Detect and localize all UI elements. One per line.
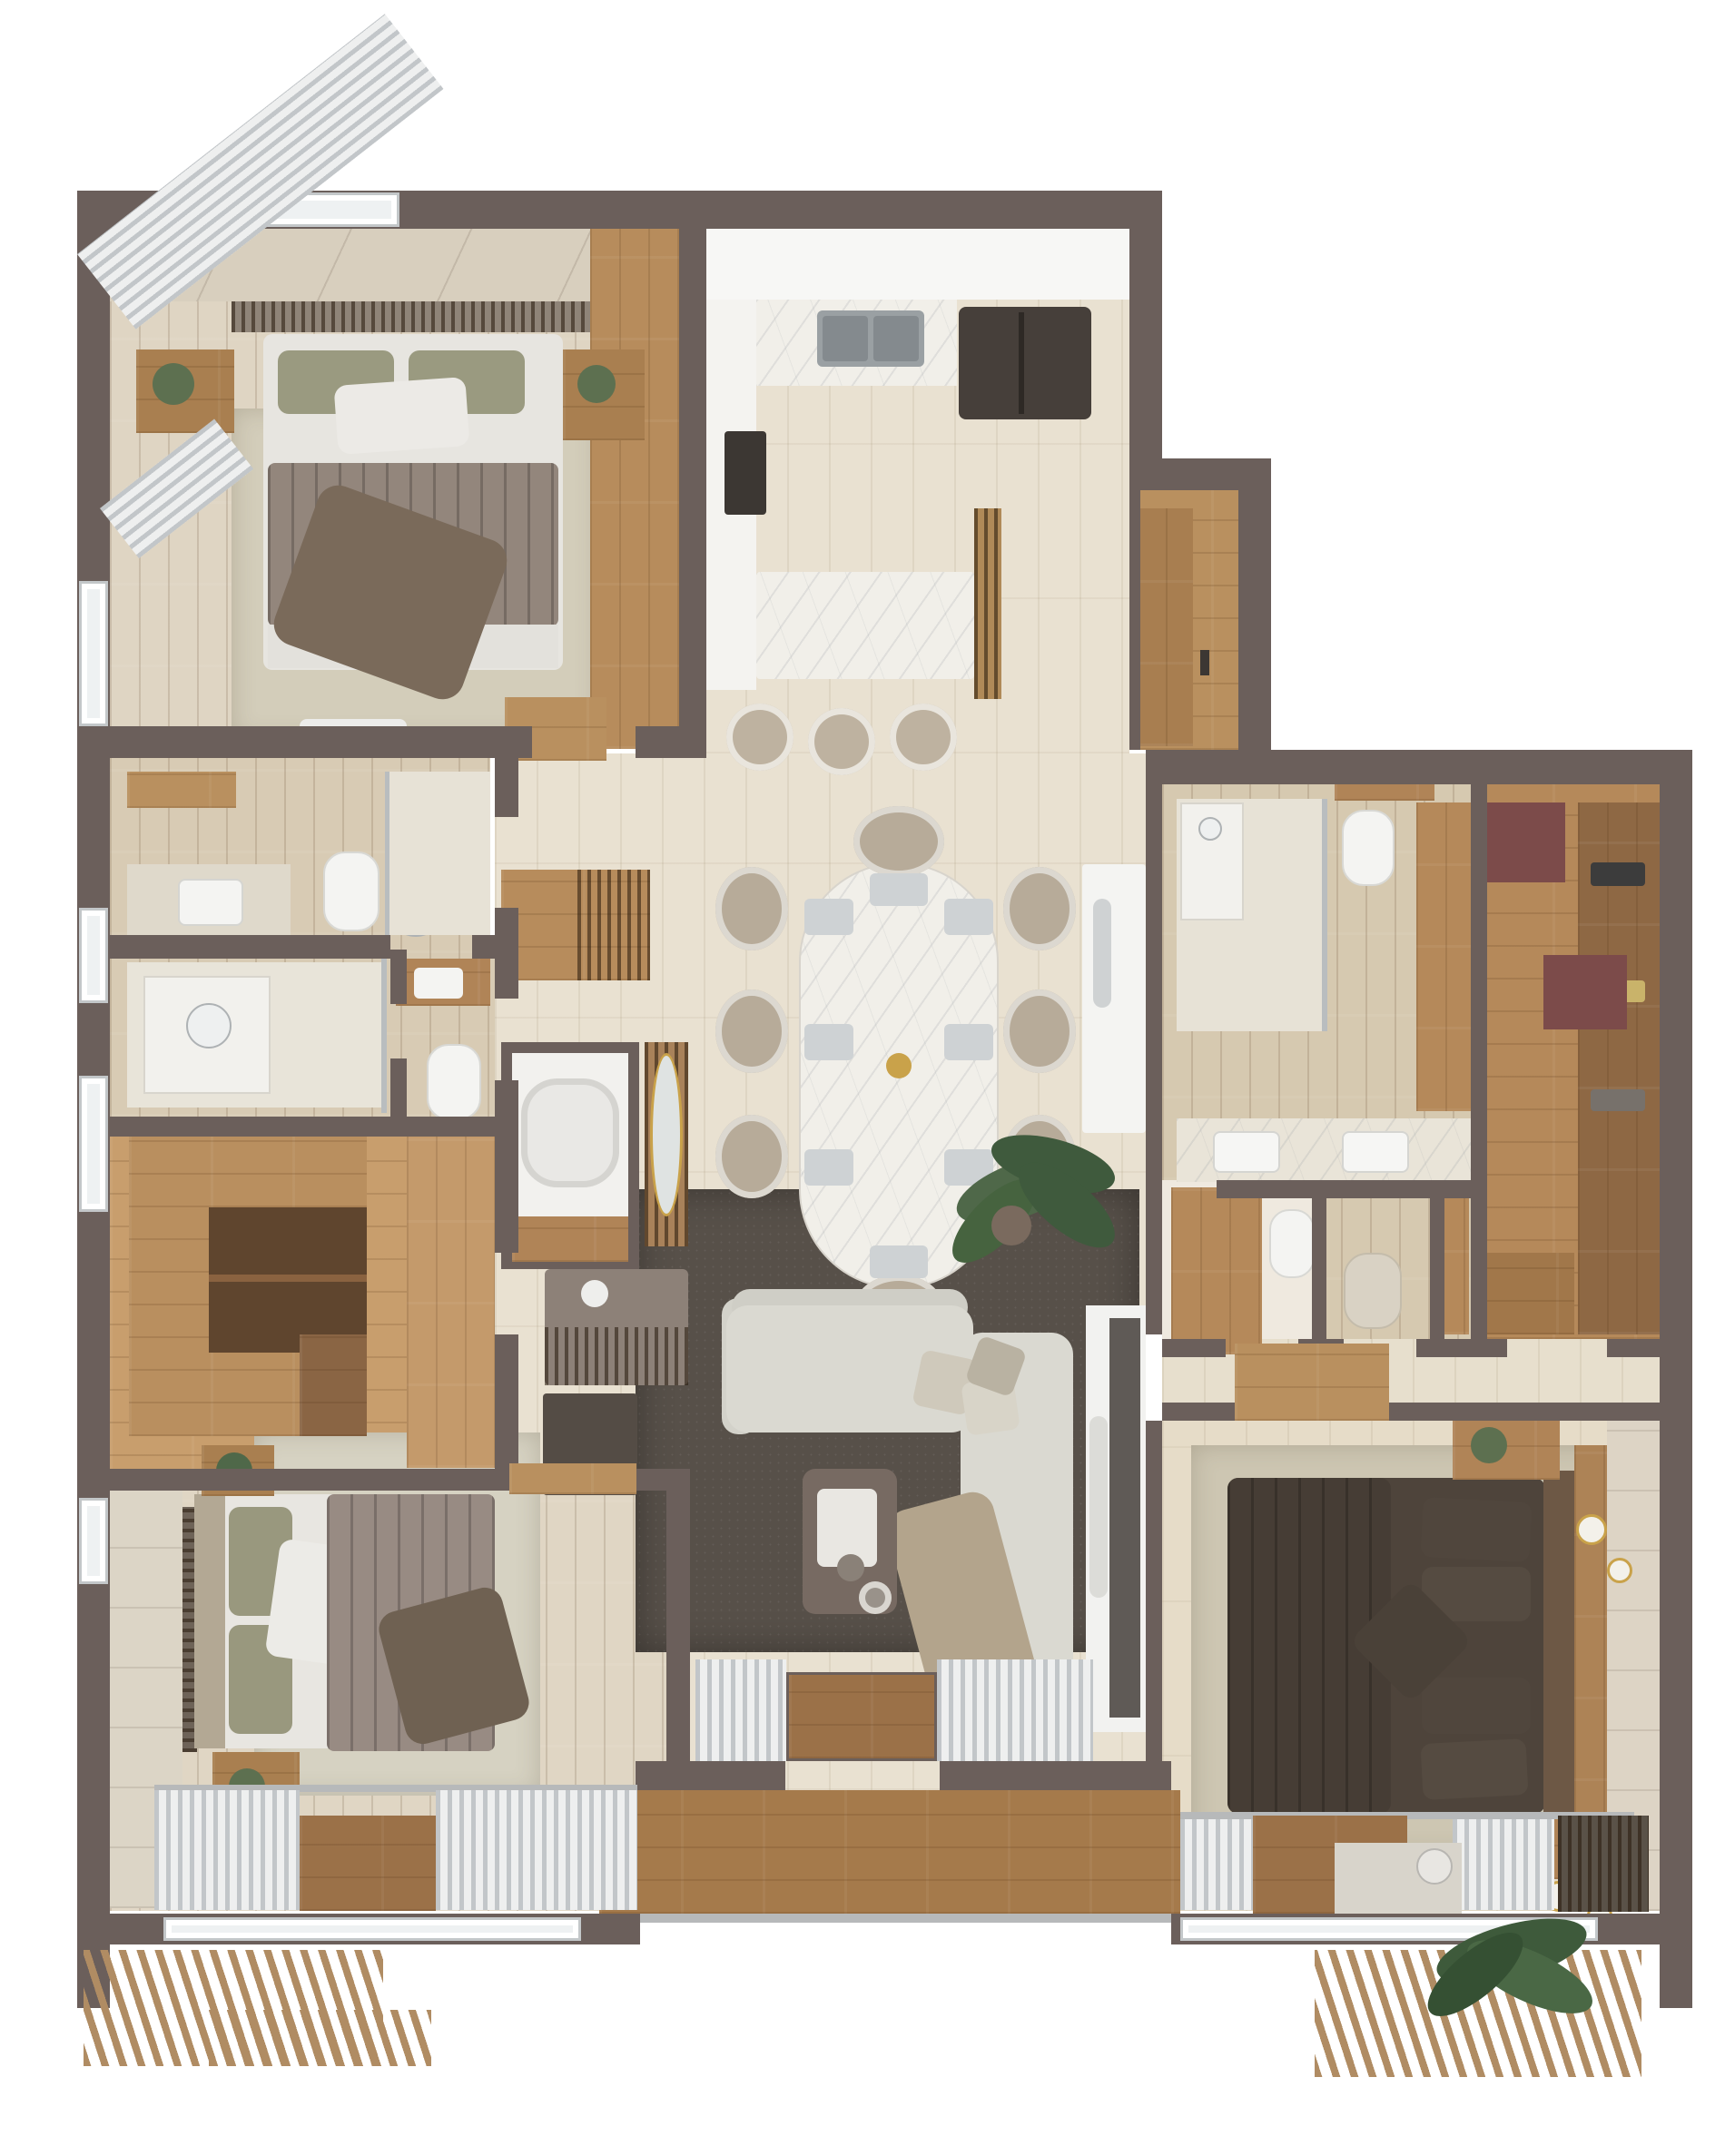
bathroom1-sink (178, 879, 243, 926)
bathroom2-toilet (1342, 810, 1395, 886)
wall-corridor-top-a (1162, 1339, 1226, 1357)
balcony-center-deck (599, 1790, 1180, 1914)
wc-right-toilet (1344, 1253, 1402, 1329)
dining-chair-top (853, 806, 944, 877)
bathroom2-shower-head (1198, 817, 1222, 841)
wc-left-toilet (1269, 1209, 1315, 1278)
place-setting-4 (944, 899, 993, 935)
bedroom2-headboard (194, 1494, 225, 1748)
hall-cabinet-slats (577, 870, 650, 980)
kitchen-stool-1 (726, 704, 793, 771)
tv-screen (1109, 1318, 1140, 1718)
bathroom2-cistern-shelf (1335, 784, 1434, 801)
sideboard-decor (1093, 899, 1111, 1008)
kitchen-upper-cabinets (704, 229, 1129, 300)
window-left-4 (79, 1498, 108, 1584)
bedroom2-balcony-deck (300, 1816, 436, 1911)
bedroom1-pillow-white (334, 377, 470, 455)
foyer-pendant (1200, 650, 1209, 675)
place-setting-1 (804, 899, 853, 935)
bathroom2-wood-cabinet (1416, 802, 1471, 1111)
wall-bedroom3-top-b (1389, 1403, 1660, 1421)
louver-awning-left-2 (209, 2010, 431, 2066)
bedroom3-curtain-right (1453, 1819, 1554, 1910)
wall-east-a (1146, 750, 1162, 1334)
tv-decor-sculpture (1089, 1416, 1108, 1598)
balcony-slat-screen (1558, 1816, 1649, 1912)
wall-bedroom3-top-a (1162, 1403, 1235, 1421)
kitchen-slat-screen (974, 508, 1001, 699)
threshold-bedroom3 (1235, 1344, 1389, 1421)
kitchen-sink-basin-right (873, 316, 919, 361)
wc-left-cabinet (1171, 1187, 1262, 1354)
kitchen-island-base (704, 556, 756, 690)
bathroom2-shower-glass (1322, 799, 1327, 1031)
bedroom3-headboard (1543, 1471, 1574, 1821)
bedroom3-pillow-4 (1420, 1738, 1528, 1800)
pendant-lamp-2 (1607, 1558, 1632, 1583)
wall-east-b (1146, 1421, 1162, 1761)
hall-oval-mirror (650, 1053, 683, 1216)
storage-right-panel (407, 1137, 495, 1468)
hall-console-slats (545, 1327, 688, 1385)
wall-bath-right-3 (495, 1080, 518, 1253)
wall-foyer-left (1129, 490, 1140, 750)
wall-shower-wc-divider-a (390, 950, 407, 1004)
wall-wc-right (1430, 1180, 1444, 1339)
wall-bath-right-2 (495, 908, 518, 999)
bathroom1-shelf (127, 772, 236, 808)
bedroom2-curtain-left (154, 1790, 300, 1910)
shower-room-glass (381, 959, 387, 1113)
dining-chair-left-3 (715, 1115, 788, 1198)
closet-shoes-1 (1591, 862, 1645, 886)
wc-small-toilet (427, 1044, 481, 1120)
wall-shower-wc-divider-b (390, 1058, 407, 1117)
wall-storage-bottom-a (110, 1469, 509, 1491)
wall-right (1660, 750, 1692, 2008)
shower-room-rainhead (186, 1003, 232, 1048)
bathroom1-toilet (323, 852, 379, 931)
balcony-side-table (1416, 1848, 1453, 1885)
balcony-center-rail (640, 1914, 1171, 1923)
closet-shoes-3 (1591, 1089, 1645, 1111)
bedroom1-plant-right (577, 365, 616, 403)
wall-bedroom1-bottom-b (636, 726, 679, 758)
wall-bathroom1-bottom-b (472, 935, 495, 959)
kitchen-island-top (756, 572, 974, 679)
dining-sideboard (1082, 864, 1146, 1133)
storage-lower-block (300, 1334, 367, 1436)
storage-shelf-line (209, 1275, 367, 1282)
place-setting-top (870, 873, 928, 906)
kitchen-fridge-handle (1019, 312, 1024, 414)
place-setting-2 (804, 1024, 853, 1060)
wall-bedroom1-bottom-a (110, 726, 532, 758)
pendant-lamp-1 (1576, 1514, 1607, 1545)
wall-living-south-a (636, 1761, 785, 1790)
wall-wc-divider (1312, 1180, 1326, 1362)
boiler-shelf (512, 1216, 628, 1262)
coffee-table-cup-1 (837, 1554, 864, 1581)
wall-storage-top (110, 1117, 495, 1137)
wc-small-basin (414, 968, 463, 999)
window-left-3 (79, 1076, 108, 1212)
bathroom1-shower (385, 772, 490, 935)
threshold-bedroom2 (509, 1463, 636, 1494)
kitchen-stool-2 (808, 708, 875, 775)
kitchen-fridge (959, 307, 1091, 419)
bathroom2-sink-right (1342, 1131, 1409, 1173)
bedroom1-plant-left (153, 363, 194, 405)
entry-threshold (786, 1672, 937, 1761)
hall-console-vase (581, 1280, 608, 1307)
bedroom3-pillow-3 (1422, 1678, 1531, 1734)
bedroom1-wardrobe (590, 229, 679, 749)
window-left-2 (79, 908, 108, 1003)
entry-curtain-left (695, 1659, 786, 1761)
dining-chair-left-2 (715, 989, 788, 1073)
place-setting-bottom (870, 1245, 928, 1278)
wall-bath-right-4 (495, 1334, 518, 1480)
window-left-1 (79, 581, 108, 726)
bedroom3-nightstand-plant (1471, 1427, 1507, 1463)
place-setting-3 (804, 1149, 853, 1186)
kitchen-stool-3 (890, 704, 957, 771)
wall-bathroom1-bottom-a (110, 935, 390, 959)
bedroom2-curtain-right (436, 1790, 637, 1910)
bedroom3-pillow-1 (1420, 1497, 1532, 1562)
wall-closet-left (1471, 784, 1487, 1339)
wall-bedroom1-right (679, 229, 706, 758)
dining-chair-right-2 (1003, 989, 1076, 1073)
coffee-table-cup-2 (859, 1581, 892, 1614)
dining-chair-right-1 (1003, 867, 1076, 950)
wall-living-south-b (940, 1761, 1171, 1790)
foyer-wardrobe (1137, 508, 1193, 746)
bedroom3-wood-band (1574, 1445, 1607, 1863)
wall-upper-right-top (1162, 750, 1692, 784)
dining-centerpiece (886, 1053, 912, 1078)
closet-box-2 (1543, 955, 1627, 1029)
kitchen-sink-basin-left (823, 316, 868, 361)
closet-box-1 (1478, 802, 1565, 882)
floor-plan (0, 0, 1725, 2156)
wall-corridor-top-d (1607, 1339, 1660, 1357)
kitchen-cooktop (724, 431, 766, 515)
wall-foyer-right (1238, 458, 1271, 750)
wall-kitchen-right (1129, 229, 1162, 490)
dining-plant-pot (991, 1206, 1031, 1245)
bathroom1-shower-glass (385, 772, 389, 935)
place-setting-5 (944, 1024, 993, 1060)
entry-curtain-right (937, 1659, 1093, 1761)
wall-bath-right-1 (495, 758, 518, 817)
closet-bench (1474, 1253, 1574, 1334)
slider-bottom-left (163, 1917, 581, 1941)
wall-corridor-top-c (1416, 1339, 1507, 1357)
dining-chair-left-1 (715, 867, 788, 950)
boiler (521, 1078, 619, 1187)
bathroom2-sink-left (1213, 1131, 1280, 1173)
